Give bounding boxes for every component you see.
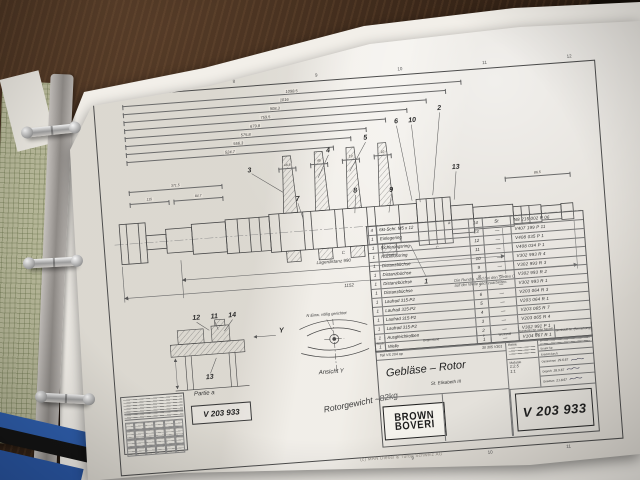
pseudo-text (508, 346, 535, 355)
ersetzt-durch-label: Ersetzt durch: (541, 351, 559, 356)
title-block: Teil VS 204 op 30 305 V301 Gebläse – Rot… (375, 335, 600, 448)
drawing-title: Gebläse – Rotor (385, 359, 466, 380)
signature-mark (566, 366, 580, 372)
ring-seam (50, 126, 53, 135)
part-pos: 7 (473, 281, 488, 290)
part-qty: 4 (367, 226, 378, 235)
part-qty: 1 (370, 262, 381, 271)
part-qty: 1 (374, 316, 385, 325)
part-pos: 10 (471, 254, 486, 263)
part-pos: 4 (475, 308, 490, 317)
part-qty: 1 (368, 235, 379, 244)
drawing-number-cell: V 203 933 (509, 383, 598, 436)
part-qty: 1 (372, 298, 383, 307)
part-pos: 6 (474, 290, 489, 299)
part-qty: 1 (371, 280, 382, 289)
meta-col-right: Ersatz für: Ersetzt durch: Gezeichnet 29… (538, 336, 595, 387)
gesehen-date: 21.8.67 (556, 378, 567, 383)
part-callout: 2 (437, 105, 441, 112)
tolerance-legend-box (120, 392, 188, 455)
part-pos: 13 (469, 227, 484, 236)
part-callout: 5 (363, 134, 367, 141)
frame-grid-number: 12 (566, 53, 571, 58)
part-callout: 8 (353, 187, 357, 194)
signature-mark (569, 376, 583, 382)
part-callout: 13 (206, 374, 214, 382)
gesehen-label: Gesehen (543, 379, 555, 384)
part-pos: 12 (470, 236, 485, 245)
dimension-label-total: 1152 (344, 282, 354, 288)
frame-grid-number: 11 (566, 444, 571, 449)
part-qty: 1 (374, 325, 385, 334)
ring-seam (64, 394, 66, 403)
drawing-frame: 89101112 91011 (92, 60, 623, 477)
meta-keine-label: Keine (508, 342, 517, 347)
ref-right: 30 305 V301 (482, 342, 503, 352)
part-callout: 6 (394, 118, 398, 125)
header-p: P (477, 329, 492, 343)
brown-boveri-logo: BROWN BOVERI (382, 402, 446, 441)
photo-scene: 89101112 91011 (0, 0, 640, 480)
part-pos: 8 (473, 272, 488, 281)
runout-mark-c: C (342, 250, 346, 255)
part-qty: 1 (368, 244, 379, 253)
ring-seam (52, 258, 54, 267)
frame-grid-number: 10 (397, 66, 402, 71)
view-arrow-label-y: Y (279, 327, 284, 334)
ersatz-fuer-label: Ersatz für: (540, 345, 553, 350)
part-pos: 5 (475, 299, 490, 308)
drawing-number: V 203 933 (515, 388, 595, 432)
part-qty: 1 (372, 289, 383, 298)
frame-grid-number: 11 (482, 60, 487, 65)
frame-grid-number: 8 (232, 79, 235, 84)
part-callout: 14 (228, 312, 236, 320)
part-callout: 3 (247, 167, 251, 174)
meta-keine: Keine (506, 340, 538, 360)
part-qty: 1 (373, 307, 384, 316)
geprueft-date: 28.9.67 (553, 368, 564, 373)
part-pos: 3 (476, 317, 491, 326)
gezeichnet-date: 29.6.67 (558, 358, 569, 363)
signature-mark (570, 356, 584, 362)
massstab-value-2: 1:1 (510, 367, 537, 374)
part-pos: 14 (469, 219, 484, 228)
part-callout: 7 (295, 196, 299, 203)
drawing-sheet[interactable]: 89101112 91011 (60, 10, 640, 480)
meta-massstab: Maßstab 1:2.5 1:1 (507, 358, 540, 389)
drawing-subtitle: St. Elisabeth III (431, 379, 462, 386)
brand-zone: BROWN BOVERI (380, 389, 513, 446)
part-pos: 9 (472, 263, 487, 272)
part-pos: 11 (471, 245, 486, 254)
part-qty: 1 (369, 253, 380, 262)
part-callout: 13 (452, 164, 460, 172)
title-meta: Keine Maßstab 1:2.5 1:1 Ersatz für: (506, 336, 595, 389)
part-callout: 11 (210, 313, 218, 321)
aux-cell (442, 389, 513, 441)
geprueft-label: Geprüft (542, 369, 552, 374)
frame-grid-number: 10 (487, 449, 492, 454)
part-callout: 9 (389, 187, 393, 194)
legend-grid (124, 418, 185, 456)
brand-line-2: BOVERI (385, 418, 446, 433)
gezeichnet-label: Gezeichnet (541, 359, 555, 364)
frame-grid-number: 9 (315, 72, 318, 77)
drawing-sheet-wrap: 89101112 91011 (0, 0, 640, 480)
meta-col-left: Keine Maßstab 1:2.5 1:1 (506, 340, 541, 389)
part-callout: 4 (326, 147, 330, 154)
part-callout: 10 (408, 117, 416, 125)
part-qty: 1 (370, 271, 381, 280)
part-callout: 12 (192, 314, 200, 322)
